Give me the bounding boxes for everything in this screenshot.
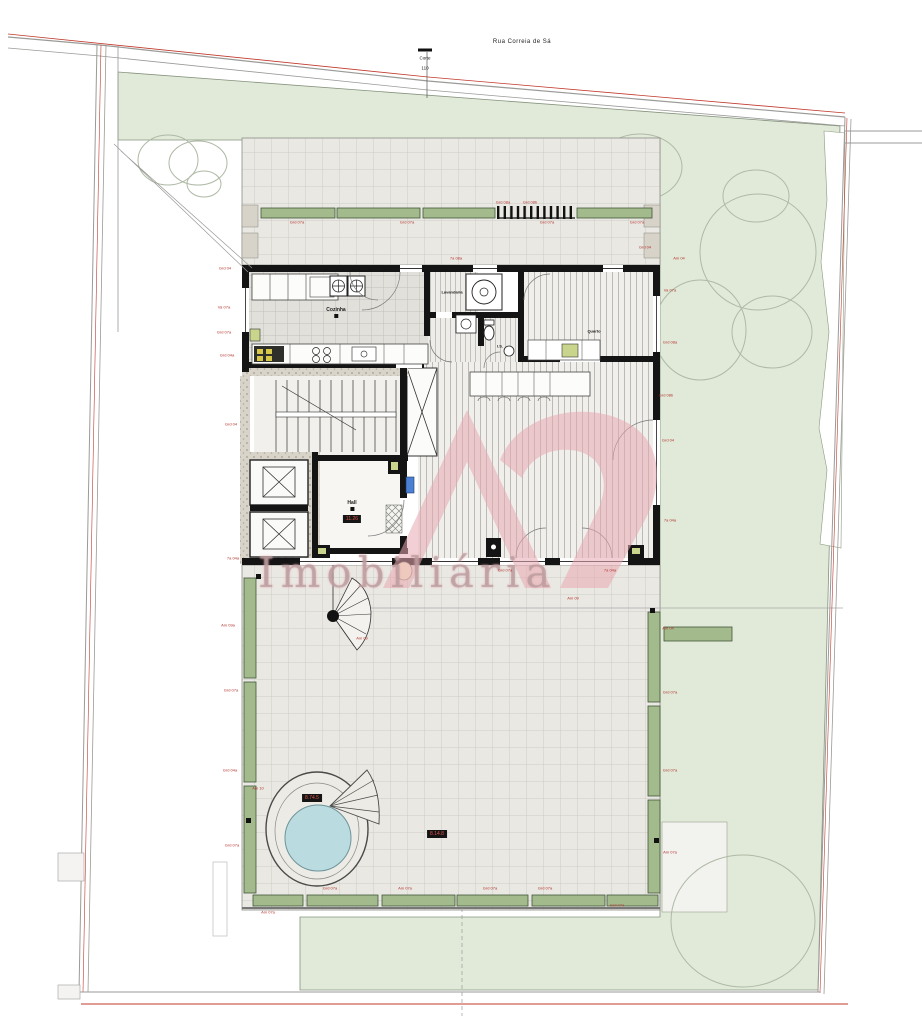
dim-label: Am 04 (673, 256, 685, 261)
room-label-wc: I.S. (497, 344, 503, 349)
dim-label: Grd 04 (225, 422, 237, 427)
dim-label: Grd 07a (498, 568, 512, 573)
dim-label: Grd 07a (400, 220, 414, 225)
dim-label: Grd 07a (610, 903, 624, 908)
dim-label: 7a 04a (604, 568, 616, 573)
dim-label: Grd 04a (220, 353, 234, 358)
dim-label: Grd 04 (662, 438, 674, 443)
watermark-text: Imobiliária (258, 548, 556, 597)
dim-label: Am 07a (663, 850, 677, 855)
section-marker-number: 110 (421, 66, 428, 71)
dim-label: Am 10 (252, 786, 264, 791)
section-marker-label: Corte (419, 56, 430, 61)
dim-label: Am 09 (567, 596, 579, 601)
dim-label: Grd 08b (659, 393, 673, 398)
room-label-kitchen: Cozinha (326, 308, 345, 318)
dim-label: Grd 07a (540, 220, 554, 225)
room-label-laundry: Lavandaria (441, 290, 462, 295)
dim-label: Grd 08a (663, 340, 677, 345)
dim-label: Grd 08a (496, 200, 510, 205)
dim-label: Grd 04 (219, 266, 231, 271)
upper-terrace (242, 138, 660, 265)
section-marker-bar (418, 49, 432, 52)
area-box-pool-deck: 8.74.5 (302, 794, 322, 802)
dim-label: Grd 07a (224, 688, 238, 693)
plan-drawing (0, 0, 922, 1020)
dim-label: Am 04 (662, 626, 674, 631)
dim-label: Grd 07a (538, 886, 552, 891)
dim-label: Grd 08b (523, 200, 537, 205)
dim-label: Grd 07a (290, 220, 304, 225)
area-box-terrace: 8.14.8 (427, 830, 447, 838)
bedroom-fixtures (528, 340, 600, 360)
room-label-hall: Hall (347, 501, 356, 511)
dim-label: Grd 07a (630, 220, 644, 225)
dim-label: Grd 07a (323, 886, 337, 891)
dim-label: Grd 07a (663, 690, 677, 695)
dim-label: Am 07a (261, 910, 275, 915)
dim-label: Va 07a (218, 305, 230, 310)
dim-label: 7a 08a (450, 256, 462, 261)
dim-label: Grd 04 (639, 245, 651, 250)
room-label-bedroom: Quarto (587, 329, 600, 334)
street-name-label: Rua Correia de Sá (493, 39, 551, 45)
dim-label: Am 09 (356, 636, 368, 641)
dim-label: Grd 07a (217, 330, 231, 335)
dim-label: 7a 04a (227, 556, 239, 561)
dim-label: Am 09a (221, 623, 235, 628)
void-shaft (407, 368, 437, 456)
dim-label: Va 07a (664, 288, 676, 293)
dim-label: Grd 07a (483, 886, 497, 891)
dim-label: Am 07a (398, 886, 412, 891)
dim-label: Grd 04a (223, 768, 237, 773)
site-plan-canvas: Imobiliária Rua Correia de Sá Corte 110 … (0, 0, 922, 1020)
dim-label: Grd 07a (225, 843, 239, 848)
dim-label: 7a 04a (664, 518, 676, 523)
dim-label: Grd 07a (663, 768, 677, 773)
area-box-hall: 11.26 (343, 515, 361, 523)
